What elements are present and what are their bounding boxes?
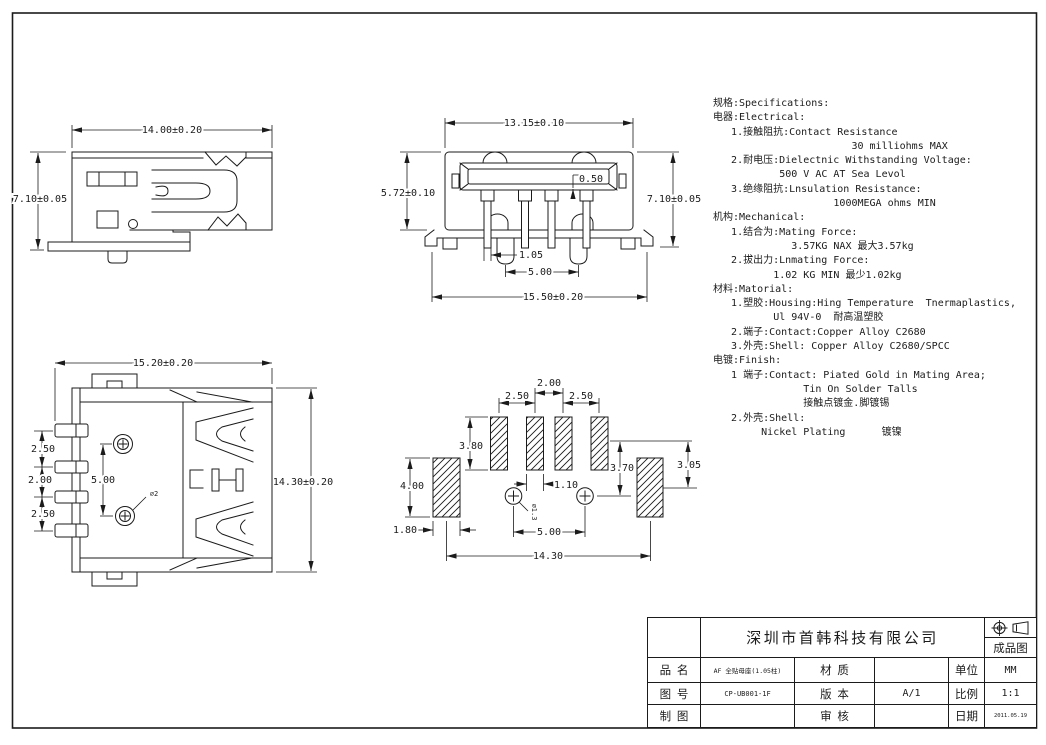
- company-name: 深圳市首韩科技有限公司: [700, 618, 984, 657]
- drawing-no-value: CP-UB001-1F: [700, 682, 794, 704]
- part-name-label: 品 名: [648, 657, 700, 682]
- dim-top-post-pitch: 5.00: [91, 475, 115, 486]
- dim-fp-shell-pad-width: 1.80: [393, 525, 417, 536]
- unit-value: MM: [984, 657, 1036, 682]
- dim-fp-pitch-left: 2.50: [505, 391, 529, 402]
- dim-fp-shell-pad-length: 4.00: [400, 481, 424, 492]
- cone-icon: [1011, 621, 1030, 635]
- dim-side-width: 14.00±0.20: [142, 125, 202, 136]
- side-view-geometry: [48, 152, 272, 263]
- drawing-no-label: 图 号: [648, 682, 700, 704]
- dim-top-height: 14.30±0.20: [273, 477, 333, 488]
- checked-label: 审 核: [794, 704, 874, 727]
- dim-fp-hole-dia: ∅1.3: [530, 504, 538, 521]
- dim-front-width-bottom: 15.50±0.20: [523, 292, 583, 303]
- scale-label: 比例: [948, 682, 984, 704]
- drawing-type: 成品图: [985, 638, 1036, 657]
- specifications: 规格:Specifications: 电器:Electrical: 1.接触阻抗…: [713, 97, 1016, 440]
- front-view: 13.15±0.10 5.72±0.10 7.10±0.05 0.50 1.05…: [381, 118, 701, 303]
- date-value: 2011.05.19: [984, 704, 1036, 727]
- projection-symbols: [985, 618, 1036, 638]
- footprint-holes: [505, 488, 593, 505]
- side-view-dimension-lines: [30, 125, 272, 250]
- dim-top-width: 15.20±0.20: [133, 358, 193, 369]
- dim-front-tongue-gap: 0.50: [579, 174, 603, 185]
- dim-fp-shell-pad-offset: 3.05: [677, 460, 701, 471]
- dim-fp-hole-pitch: 5.00: [537, 527, 561, 538]
- top-view: 15.20±0.20 14.30±0.20 2.50 2.00 2.50 5.0…: [28, 358, 333, 586]
- dim-top-pitch-c: 2.50: [31, 509, 55, 520]
- dim-top-pitch-b: 2.00: [28, 475, 52, 486]
- top-view-geometry: [55, 374, 272, 586]
- date-label: 日期: [948, 704, 984, 727]
- dim-fp-hole-offset: 3.70: [610, 463, 634, 474]
- projection-and-type-cell: 成品图: [984, 618, 1036, 657]
- side-view: 14.00±0.20 7.10±0.05: [13, 125, 272, 263]
- dim-front-pin-width: 1.05: [519, 250, 543, 261]
- dim-front-height-right: 7.10±0.05: [647, 194, 701, 205]
- version-value: A/1: [874, 682, 948, 704]
- drawing-sheet: 14.00±0.20 7.10±0.05: [0, 0, 1046, 740]
- dim-side-height: 7.10±0.05: [13, 194, 67, 205]
- scale-value: 1:1: [984, 682, 1036, 704]
- dim-fp-pad-length: 3.80: [459, 441, 483, 452]
- footprint-view: 2.00 2.50 2.50 3.80 4.00 1.80 1.10 3.70 …: [393, 378, 701, 562]
- front-view-geometry: [425, 152, 653, 264]
- drawn-by-value: [700, 704, 794, 727]
- drawn-by-label: 制 图: [648, 704, 700, 727]
- material-value: [874, 657, 948, 682]
- dim-fp-pitch-right: 2.50: [569, 391, 593, 402]
- dim-fp-pitch-center: 2.00: [537, 378, 561, 389]
- material-label: 材 质: [794, 657, 874, 682]
- dim-front-post-pitch: 5.00: [528, 267, 552, 278]
- title-block: 深圳市首韩科技有限公司 成品图 品 名 AF 全贴母座(1.05柱) 材 质 单…: [647, 617, 1037, 728]
- target-circle-icon: [991, 620, 1008, 636]
- unit-label: 单位: [948, 657, 984, 682]
- dim-fp-pad-width: 1.10: [554, 480, 578, 491]
- dim-front-width-top: 13.15±0.10: [504, 118, 564, 129]
- dim-front-height-left: 5.72±0.10: [381, 188, 435, 199]
- dim-top-pitch-a: 2.50: [31, 444, 55, 455]
- version-label: 版 本: [794, 682, 874, 704]
- dim-top-post-dia: ∅2: [150, 490, 158, 498]
- title-block-empty-cell: [648, 618, 700, 657]
- checked-value: [874, 704, 948, 727]
- dim-fp-overall-width: 14.30: [533, 551, 563, 562]
- part-name-value: AF 全贴母座(1.05柱): [700, 657, 794, 682]
